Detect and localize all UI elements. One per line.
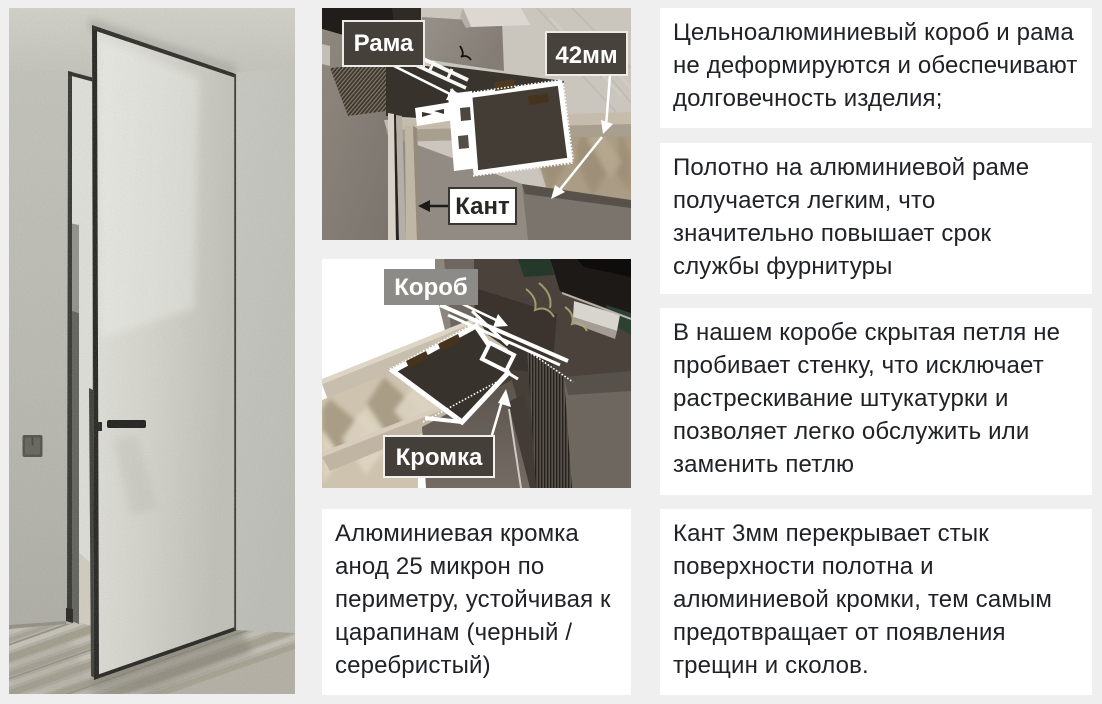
svg-text:Кромка: Кромка	[396, 444, 483, 471]
svg-text:Рама: Рама	[354, 30, 414, 57]
svg-text:Кант: Кант	[455, 193, 510, 220]
svg-text:Короб: Короб	[394, 274, 467, 301]
svg-text:42мм: 42мм	[555, 42, 617, 69]
